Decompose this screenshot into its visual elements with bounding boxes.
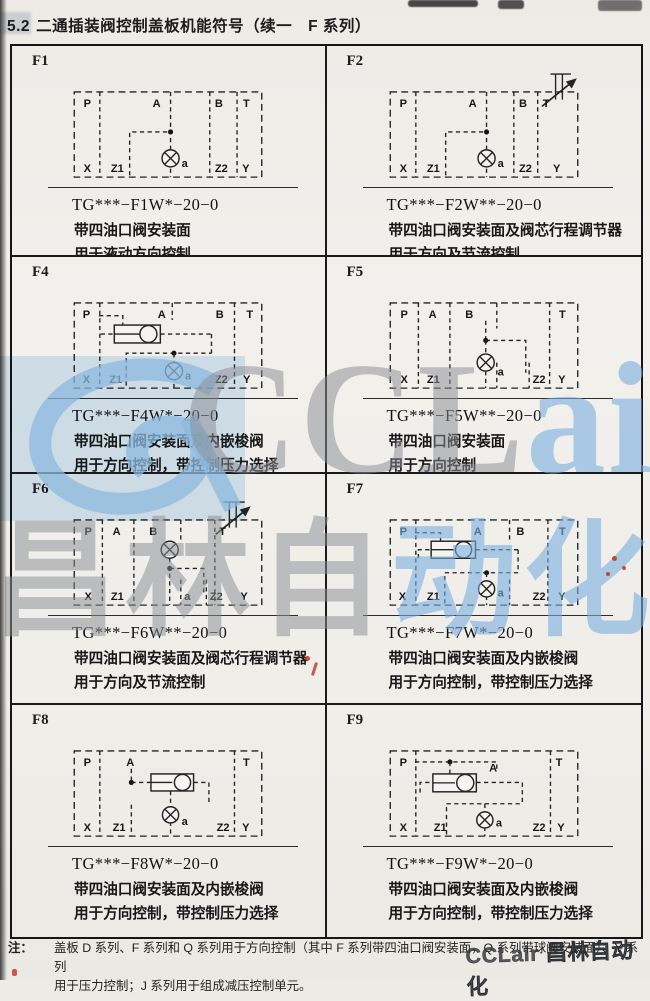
port-label: a xyxy=(184,591,191,603)
port-label: A xyxy=(468,98,476,110)
red-pen-mark xyxy=(305,656,310,661)
port-label: X xyxy=(399,822,407,834)
pilot-valve-symbol xyxy=(161,541,178,558)
envelope xyxy=(75,751,262,836)
pilot-valve-symbol xyxy=(478,581,494,597)
port-label: a xyxy=(185,371,192,383)
cell-label: F2 xyxy=(347,53,642,70)
port-label: a xyxy=(497,366,504,378)
hydraulic-diagram-f6: P A B T X Z1 a Z2 Y xyxy=(70,498,266,610)
port-label: Z2 xyxy=(215,374,228,386)
port-label: P xyxy=(83,309,90,321)
page-title: 5.2二通插装阀控制盖板机能符号（续一 F 系列） xyxy=(7,14,371,36)
shuttle-valve-symbol xyxy=(115,325,161,343)
port-label: A xyxy=(158,309,166,321)
port-label: T xyxy=(559,526,566,538)
separator-line xyxy=(363,615,613,616)
scan-smudge xyxy=(408,0,478,7)
model-code: TG***−F4W*−20−0 xyxy=(72,406,325,426)
port-label: Y xyxy=(558,374,566,386)
port-label: T xyxy=(555,757,562,769)
cell-label: F7 xyxy=(347,481,642,498)
port-label: B xyxy=(465,309,473,321)
cell-F4: F4 P A B T xyxy=(12,257,327,474)
model-code: TG***−F5W**−20−0 xyxy=(387,406,642,426)
hydraulic-diagram-f7: P A B T X Z1 a Z2 Y xyxy=(386,498,582,610)
port-label: a xyxy=(497,588,504,600)
port-label: X xyxy=(399,163,407,175)
cell-label: F1 xyxy=(32,53,325,70)
port-label: Y xyxy=(553,163,561,175)
port-label: Y xyxy=(558,591,566,603)
cell-F7: F7 P A B xyxy=(327,474,642,705)
pilot-valve-symbol xyxy=(477,812,493,828)
separator-line xyxy=(363,398,613,399)
footnote: 注： 盖板 D 系列、F 系列和 Q 系列用于方向控制（其中 F 系列带四油口阀… xyxy=(8,939,644,996)
separator-line xyxy=(48,398,298,399)
port-label: T xyxy=(243,98,250,110)
port-label: T xyxy=(219,526,226,538)
port-label: Z1 xyxy=(427,163,440,175)
shuttle-valve-symbol xyxy=(431,541,475,558)
model-code: TG***−F6W**−20−0 xyxy=(72,623,325,643)
red-pen-mark xyxy=(622,566,626,570)
port-label: Z1 xyxy=(433,822,446,834)
port-label: A xyxy=(113,526,121,538)
port-label: A xyxy=(126,757,134,769)
port-label: Y xyxy=(242,822,250,834)
port-label: Y xyxy=(557,822,565,834)
pilot-valve-symbol xyxy=(477,354,494,371)
port-label: B xyxy=(216,309,224,321)
hydraulic-diagram-f8: P A T X Z1 a Z2 Y xyxy=(70,729,266,841)
hydraulic-diagram-f2: P A B T X Z1 a Z2 Y xyxy=(386,70,582,182)
junction-dot xyxy=(484,129,489,134)
port-label: Y xyxy=(241,591,249,603)
port-label: P xyxy=(84,98,91,110)
port-label: P xyxy=(84,757,91,769)
port-label: B xyxy=(516,526,524,538)
description: 带四油口阀安装面及内嵌梭阀 用于方向控制，带控制压力选择 xyxy=(389,878,642,926)
scan-edge-shadow xyxy=(0,0,7,980)
port-label: Z1 xyxy=(109,374,122,386)
port-label: B xyxy=(150,526,158,538)
port-label: Z2 xyxy=(217,822,230,834)
port-label: X xyxy=(400,374,408,386)
cell-F6: F6 P A xyxy=(12,474,327,705)
port-label: T xyxy=(247,309,254,321)
port-label: Z1 xyxy=(111,591,124,603)
port-label: P xyxy=(400,309,407,321)
port-label: Z2 xyxy=(532,374,545,386)
port-label: Z1 xyxy=(427,374,440,386)
description: 带四油口阀安装面及阀芯行程调节器 用于方向及节流控制 xyxy=(74,647,325,695)
port-label: Z1 xyxy=(113,822,126,834)
port-label: X xyxy=(85,591,93,603)
cell-label: F6 xyxy=(32,481,325,498)
port-label: Y xyxy=(243,374,251,386)
pilot-valve-symbol xyxy=(166,363,183,380)
scanned-catalog-page: { "page": { "section": "5.2", "title": "… xyxy=(0,0,650,980)
pilot-valve-symbol xyxy=(163,807,179,823)
cell-label: F5 xyxy=(347,264,642,281)
footnote-text: 盖板 D 系列、F 系列和 Q 系列用于方向控制（其中 F 系列带四油口阀安装面… xyxy=(54,939,644,996)
description: 带四油口阀安装面及内嵌梭阀 用于方向控制，带控制压力选择 xyxy=(74,430,325,474)
port-label: T xyxy=(243,757,250,769)
red-pen-mark xyxy=(606,572,610,576)
hydraulic-diagram-f4: P A B T X Z1 a Z2 Y xyxy=(70,281,266,393)
cell-F9: F9 P A T X Z1 xyxy=(327,705,642,937)
separator-line xyxy=(363,846,613,847)
description: 带四油口阀安装面及阀芯行程调节器 用于方向及节流控制 xyxy=(389,219,642,257)
junction-dot xyxy=(168,129,173,134)
red-pen-mark xyxy=(12,969,17,976)
footnote-label: 注： xyxy=(8,939,54,996)
port-label: B xyxy=(519,98,527,110)
description: 带四油口阀安装面 用于方向控制 xyxy=(389,430,642,474)
cell-F8: F8 P A T X Z1 xyxy=(12,705,327,937)
port-label: A xyxy=(428,309,436,321)
symbol-table: F1 P A B T X Z1 a Z2 Y TG***−F1W*−20− xyxy=(10,44,643,939)
cell-label: F8 xyxy=(32,712,325,729)
port-label: Z1 xyxy=(111,163,124,175)
hydraulic-diagram-f5: P A B T X Z1 a Z2 Y xyxy=(386,281,582,393)
description: 带四油口阀安装面 用于液动方向控制 xyxy=(74,219,325,257)
port-label: P xyxy=(399,98,406,110)
hydraulic-diagram-f9: P A T X Z1 a Z2 Y xyxy=(386,729,582,841)
port-label: X xyxy=(399,591,407,603)
cell-label: F9 xyxy=(347,712,642,729)
cell-F5: F5 P A B T X Z1 a Z2 Y xyxy=(327,257,642,474)
port-label: a xyxy=(497,158,504,170)
port-label: X xyxy=(83,374,91,386)
section-title: 二通插装阀控制盖板机能符号（续一 F 系列） xyxy=(36,18,371,35)
separator-line xyxy=(363,187,613,188)
scan-smudge xyxy=(498,0,524,9)
shuttle-valve-symbol xyxy=(433,774,476,792)
separator-line xyxy=(48,846,298,847)
port-label: Z2 xyxy=(215,163,228,175)
port-label: a xyxy=(182,158,189,170)
separator-line xyxy=(48,615,298,616)
model-code: TG***−F8W*−20−0 xyxy=(72,854,325,874)
port-label: A xyxy=(474,526,482,538)
port-label: Z2 xyxy=(532,822,545,834)
shuttle-valve-symbol xyxy=(151,774,194,791)
port-label: Z2 xyxy=(519,163,532,175)
cell-label: F4 xyxy=(32,264,325,281)
port-label: Z1 xyxy=(427,591,440,603)
section-number: 5.2 xyxy=(7,18,30,35)
cell-F1: F1 P A B T X Z1 a Z2 Y TG***−F1W*−20− xyxy=(12,46,327,257)
port-label: T xyxy=(559,309,566,321)
model-code: TG***−F2W**−20−0 xyxy=(387,195,642,215)
port-label: P xyxy=(85,526,92,538)
model-code: TG***−F7W*−20−0 xyxy=(387,623,642,643)
port-label: a xyxy=(496,818,503,830)
port-label: a xyxy=(182,816,189,828)
model-code: TG***−F9W*−20−0 xyxy=(387,854,642,874)
port-label: Z2 xyxy=(210,591,223,603)
port-label: P xyxy=(399,526,406,538)
pilot-valve-symbol xyxy=(478,150,495,167)
separator-line xyxy=(48,187,298,188)
port-label: X xyxy=(84,822,92,834)
port-label: Y xyxy=(242,163,250,175)
description: 带四油口阀安装面及内嵌梭阀 用于方向控制，带控制压力选择 xyxy=(74,878,325,926)
description: 带四油口阀安装面及内嵌梭阀 用于方向控制，带控制压力选择 xyxy=(389,647,642,695)
red-pen-mark xyxy=(612,556,617,561)
port-label: A xyxy=(489,762,497,774)
port-label: Z2 xyxy=(532,591,545,603)
port-label: P xyxy=(399,757,406,769)
port-label: B xyxy=(215,98,223,110)
model-code: TG***−F1W*−20−0 xyxy=(72,195,325,215)
scan-smudge xyxy=(598,0,642,11)
hydraulic-diagram-f1: P A B T X Z1 a Z2 Y xyxy=(70,70,266,182)
pilot-valve-symbol xyxy=(162,150,179,167)
port-label: X xyxy=(84,163,92,175)
port-label: T xyxy=(543,98,550,110)
port-label: A xyxy=(153,98,161,110)
cell-F2: F2 P A B T X xyxy=(327,46,642,257)
